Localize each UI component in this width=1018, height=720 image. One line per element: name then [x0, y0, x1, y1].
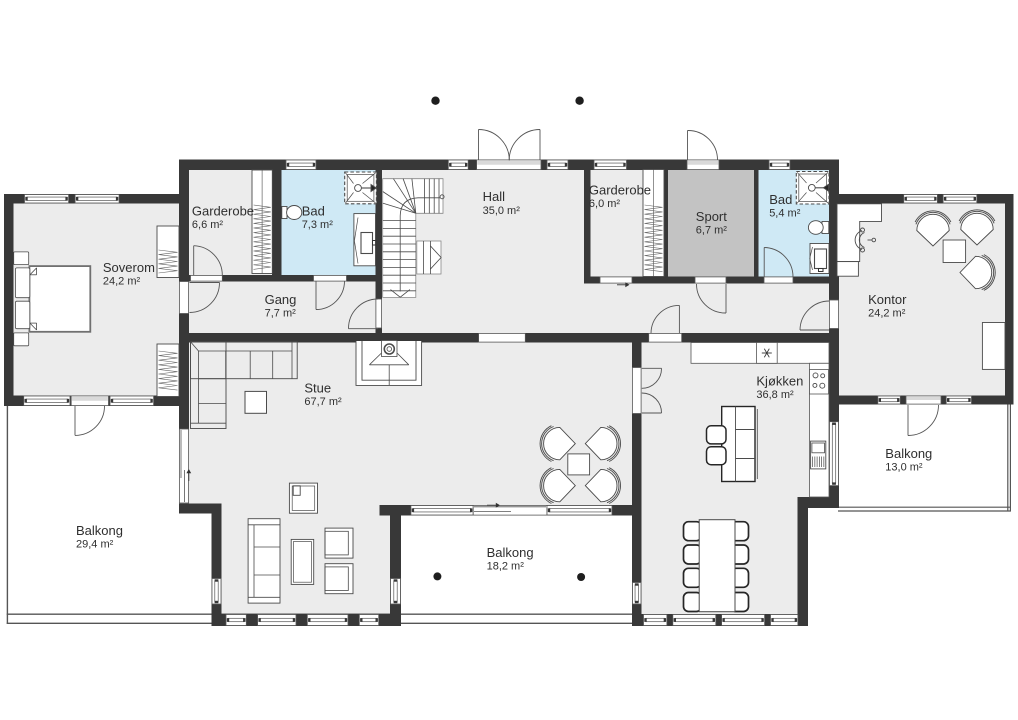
svg-text:Garderobe: Garderobe: [589, 183, 651, 198]
svg-text:24,2 m²: 24,2 m²: [868, 308, 906, 320]
svg-text:Stue: Stue: [304, 380, 331, 395]
svg-text:Balkong: Balkong: [76, 523, 123, 538]
svg-text:7,3 m²: 7,3 m²: [302, 219, 334, 231]
svg-text:24,2 m²: 24,2 m²: [103, 276, 141, 288]
svg-text:18,2 m²: 18,2 m²: [487, 561, 525, 573]
svg-text:29,4 m²: 29,4 m²: [76, 539, 114, 551]
svg-text:67,7 m²: 67,7 m²: [304, 396, 342, 408]
svg-text:13,0 m²: 13,0 m²: [885, 462, 923, 474]
svg-text:Sport: Sport: [696, 209, 727, 224]
svg-text:Balkong: Balkong: [487, 545, 534, 560]
svg-text:35,0 m²: 35,0 m²: [483, 205, 521, 217]
svg-text:Bad: Bad: [302, 203, 325, 218]
svg-text:Kjøkken: Kjøkken: [756, 374, 803, 389]
svg-text:6,6 m²: 6,6 m²: [192, 219, 224, 231]
svg-text:Kontor: Kontor: [868, 292, 907, 307]
svg-text:5,4 m²: 5,4 m²: [769, 208, 801, 220]
svg-text:Garderobe: Garderobe: [192, 203, 254, 218]
svg-text:36,8 m²: 36,8 m²: [756, 389, 794, 401]
svg-text:6,7 m²: 6,7 m²: [696, 225, 728, 237]
svg-text:Soverom: Soverom: [103, 260, 155, 275]
svg-text:Hall: Hall: [483, 189, 506, 204]
svg-text:Balkong: Balkong: [885, 446, 932, 461]
svg-text:6,0 m²: 6,0 m²: [589, 198, 621, 210]
svg-text:Gang: Gang: [265, 292, 297, 307]
svg-text:Bad: Bad: [769, 192, 792, 207]
svg-text:7,7 m²: 7,7 m²: [265, 308, 297, 320]
